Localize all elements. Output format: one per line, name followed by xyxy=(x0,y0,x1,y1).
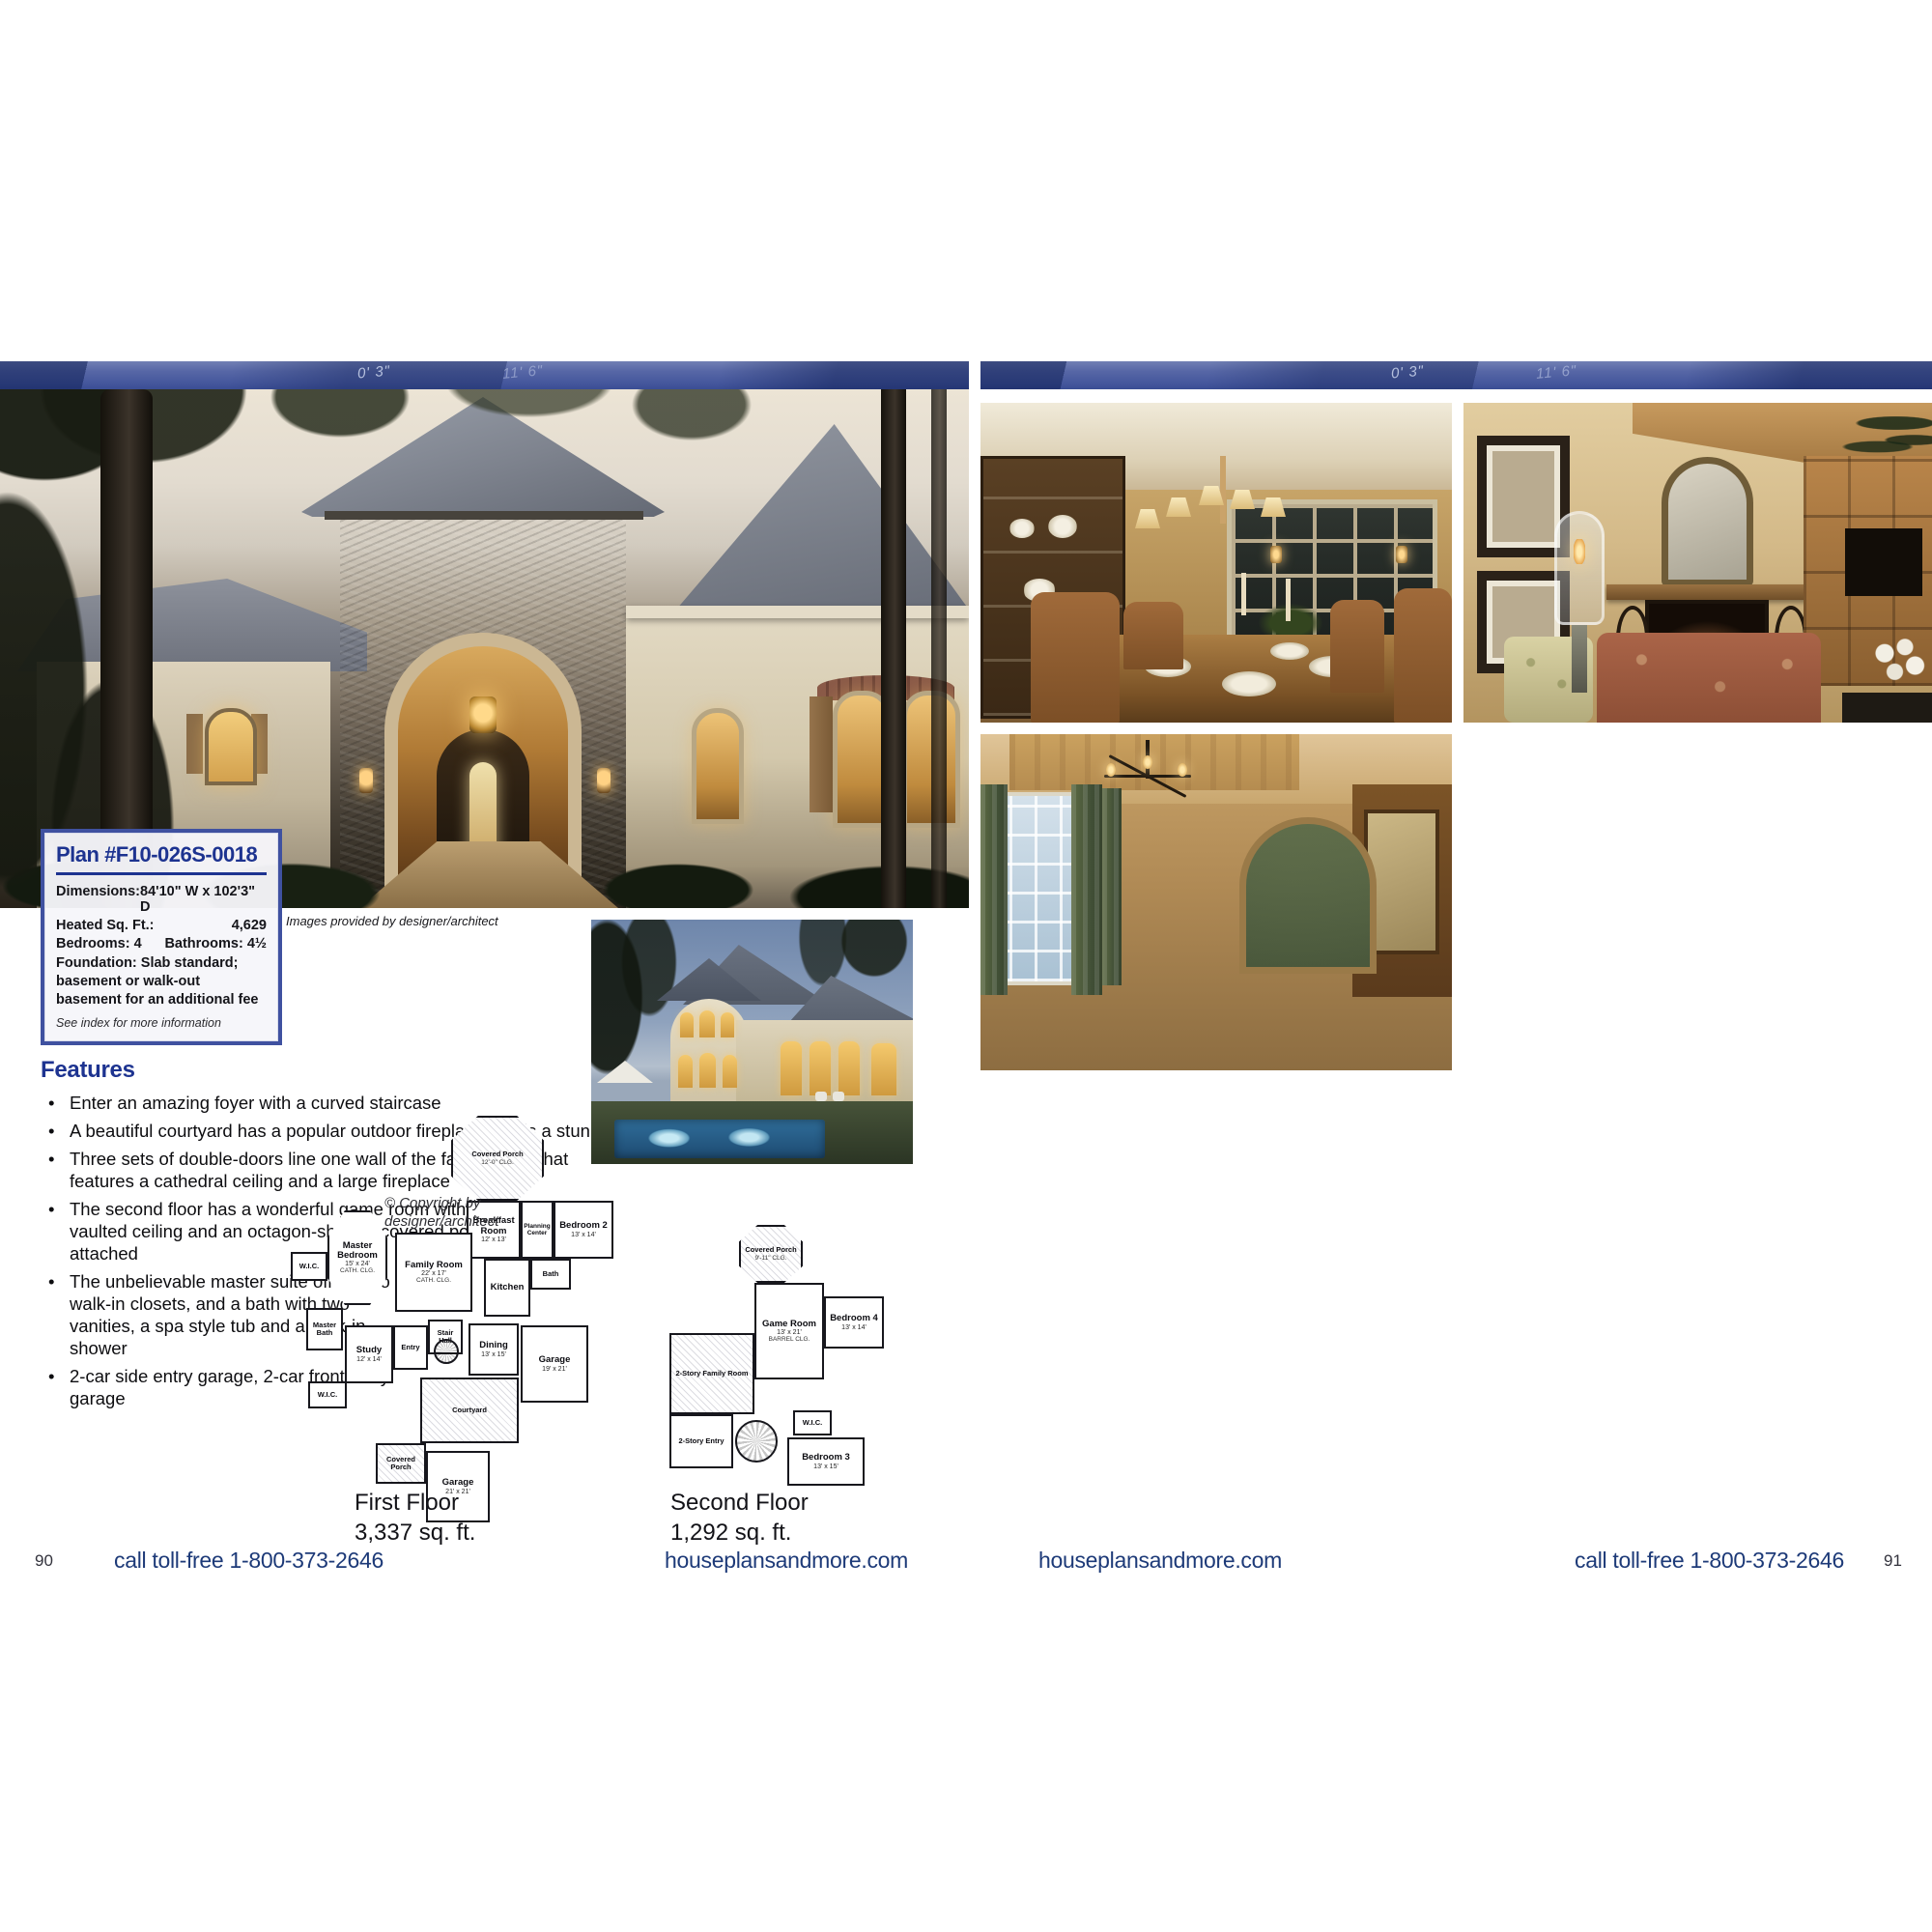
taper-candle xyxy=(1286,579,1291,621)
floral-sofa xyxy=(1597,633,1821,723)
wall-sconce xyxy=(359,768,373,793)
fp1-kitchen: Kitchen xyxy=(484,1259,530,1317)
room-dim: 13' x 14' xyxy=(841,1324,867,1331)
fp1-covered-porch: Covered Porch 12'-0" clg. xyxy=(451,1116,544,1201)
dining-chair xyxy=(1394,588,1452,723)
room-label: Garage xyxy=(539,1355,571,1365)
plan-info-box: Plan #F10-026S-0018 Dimensions: 84'10" W… xyxy=(41,829,282,1045)
room-dim: 13' x 15' xyxy=(813,1463,838,1470)
cabinet-niche xyxy=(1845,528,1922,596)
lit-window xyxy=(723,1055,737,1088)
room-note: cath. clg. xyxy=(340,1267,375,1274)
fp1-covered-porch-front: Covered Porch xyxy=(376,1443,426,1484)
hurricane-candle xyxy=(1554,511,1605,625)
room-dim: 22' x 17' xyxy=(421,1270,446,1277)
fp1-courtyard: Courtyard xyxy=(420,1378,519,1443)
pillow xyxy=(1295,933,1363,972)
china-piece xyxy=(1009,519,1035,538)
fp2-bedroom-4: Bedroom 4 13' x 14' xyxy=(824,1296,884,1349)
fp1-bath: Bath xyxy=(530,1259,571,1290)
lit-window xyxy=(680,1012,694,1037)
lit-window xyxy=(692,708,744,824)
room-label: Courtyard xyxy=(452,1406,487,1414)
fp1-family-room: Family Room 22' x 17' cath. clg. xyxy=(395,1233,472,1312)
lit-window xyxy=(678,1055,693,1088)
toll-free-text-right: call toll-free 1-800-373-2646 xyxy=(1575,1548,1844,1574)
living-room-fireplace-photo xyxy=(1463,403,1932,723)
candlestick-base xyxy=(1572,625,1587,693)
chandelier-light xyxy=(1143,755,1152,769)
sconce-light xyxy=(1396,546,1407,563)
room-label: Covered Porch xyxy=(379,1456,423,1471)
room-label: Study xyxy=(356,1346,382,1355)
place-setting xyxy=(1222,671,1276,696)
heated-sqft-label: Heated Sq. Ft.: xyxy=(56,918,155,933)
lit-window xyxy=(838,1041,860,1095)
fp1-wic2: W.I.C. xyxy=(308,1381,347,1408)
mantel-mirror xyxy=(1662,457,1753,586)
lit-window xyxy=(721,1012,734,1037)
page-number-left: 90 xyxy=(35,1551,53,1571)
room-label: Entry xyxy=(401,1344,419,1351)
bathrooms-value: Bathrooms: 4½ xyxy=(164,936,267,952)
room-label: Bedroom 2 xyxy=(559,1221,608,1231)
room-note: barrel clg. xyxy=(769,1336,810,1343)
room-label: W.I.C. xyxy=(803,1419,822,1427)
room-label: W.I.C. xyxy=(318,1391,337,1399)
copyright-note: © Copyright by designer/architect xyxy=(384,1194,539,1231)
foundation-note: Foundation: Slab standard; basement or w… xyxy=(56,954,267,1009)
room-label: 2-Story Entry xyxy=(678,1437,724,1445)
lit-window xyxy=(871,1043,896,1095)
dining-chair xyxy=(1123,602,1183,669)
fp1-bedroom-2: Bedroom 2 13' x 14' xyxy=(554,1201,613,1259)
fp1-entry: Entry xyxy=(393,1325,428,1370)
place-setting xyxy=(1270,642,1309,660)
banner-texture xyxy=(980,361,1932,389)
fp1-wic: W.I.C. xyxy=(291,1252,327,1281)
spec-row-sqft: Heated Sq. Ft.: 4,629 xyxy=(56,918,267,933)
patio-chair xyxy=(815,1092,827,1101)
see-index-note: See index for more information xyxy=(56,1016,267,1030)
second-floor-plan: Covered Porch 9'-11" clg. Game Room 13' … xyxy=(642,1225,927,1491)
swimming-pool xyxy=(614,1120,825,1158)
curved-staircase-symbol xyxy=(434,1339,459,1364)
side-table xyxy=(1842,693,1932,723)
chandelier-light xyxy=(1178,763,1187,777)
catalog-spread: 0' 3" 11' 6" 0' 3" 11' 6" xyxy=(0,0,1932,1932)
fp1-study: Study 12' x 14' xyxy=(345,1325,393,1383)
fp1-dining: Dining 13' x 15' xyxy=(469,1323,519,1376)
blueprint-banner-right: 0' 3" 11' 6" xyxy=(980,361,1932,389)
room-label: Covered Porch xyxy=(471,1151,523,1158)
wood-mantel xyxy=(1606,584,1807,600)
second-floor-sqft: 1,292 sq. ft. xyxy=(670,1518,809,1548)
first-floor-sqft: 3,337 sq. ft. xyxy=(355,1518,475,1548)
room-note: 9'-11" clg. xyxy=(754,1255,786,1262)
room-label: Family Room xyxy=(405,1261,463,1270)
dining-chair xyxy=(1031,592,1120,723)
plan-number-title: Plan #F10-026S-0018 xyxy=(56,842,267,875)
sconce-light xyxy=(1270,546,1282,563)
green-drape xyxy=(1071,784,1102,995)
dining-chair xyxy=(1330,600,1384,693)
spec-row-dimensions: Dimensions: 84'10" W x 102'3" D xyxy=(56,884,267,915)
fp2-game-room: Game Room 13' x 21' barrel clg. xyxy=(754,1283,824,1379)
chandelier-light xyxy=(1106,763,1116,777)
green-drape xyxy=(980,784,1008,995)
website-text-right: houseplansandmore.com xyxy=(1038,1548,1282,1574)
photo-credit-caption: Images provided by designer/architect xyxy=(286,914,498,928)
room-dim: 15' x 24' xyxy=(345,1261,370,1267)
dining-room-photo xyxy=(980,403,1452,723)
dimensions-value: 84'10" W x 102'3" D xyxy=(140,884,267,915)
room-label: Master Bath xyxy=(309,1321,340,1337)
room-note: cath. clg. xyxy=(416,1277,451,1284)
chandelier-rope xyxy=(1220,456,1226,524)
fp2-covered-porch: Covered Porch 9'-11" clg. xyxy=(739,1225,803,1283)
room-label: Game Room xyxy=(762,1320,816,1329)
room-label: W.I.C. xyxy=(299,1263,319,1270)
room-label: Bedroom 4 xyxy=(830,1314,878,1323)
bedrooms-value: Bedrooms: 4 xyxy=(56,936,142,952)
room-dim: 13' x 14' xyxy=(571,1232,596,1238)
hanging-lantern xyxy=(469,696,497,733)
tree-trunk xyxy=(931,389,947,908)
tree-trunk xyxy=(881,389,906,908)
features-heading: Features xyxy=(41,1057,135,1084)
toll-free-text-left: call toll-free 1-800-373-2646 xyxy=(114,1548,384,1574)
first-floor-plan: Covered Porch 12'-0" clg. Breakfast Room… xyxy=(237,1111,642,1531)
fp1-master-bedroom: Master Bedroom 15' x 24' cath. clg. xyxy=(327,1210,387,1305)
fp2-bedroom-3: Bedroom 3 13' x 15' xyxy=(787,1437,865,1486)
room-label: Master Bedroom xyxy=(330,1241,384,1262)
blueprint-banner-left: 0' 3" 11' 6" xyxy=(0,361,969,389)
china-piece xyxy=(1048,515,1077,538)
second-floor-title: Second Floor xyxy=(670,1488,809,1518)
spec-row-beds-baths: Bedrooms: 4 Bathrooms: 4½ xyxy=(56,936,267,952)
room-dim: 12' x 14' xyxy=(356,1356,382,1363)
white-flowers xyxy=(1864,635,1932,696)
room-label: Covered Porch xyxy=(745,1246,796,1254)
fp1-master-bath: Master Bath xyxy=(306,1308,343,1350)
room-label: Bedroom 3 xyxy=(802,1453,850,1463)
room-label: 2-Story Family Room xyxy=(675,1370,748,1378)
room-label: Kitchen xyxy=(491,1283,525,1293)
room-dim: 13' x 15' xyxy=(481,1351,506,1358)
website-text-left: houseplansandmore.com xyxy=(618,1548,908,1574)
pillow xyxy=(1228,927,1303,970)
lit-window xyxy=(699,1010,715,1037)
tree-canopy xyxy=(232,389,773,505)
first-floor-caption: First Floor 3,337 sq. ft. xyxy=(355,1488,475,1548)
dimensions-label: Dimensions: xyxy=(56,884,140,915)
lit-window xyxy=(810,1041,831,1095)
fp1-garage-side: Garage 19' x 21' xyxy=(521,1325,588,1403)
window-shutter xyxy=(810,696,833,812)
room-label: Bath xyxy=(543,1270,559,1278)
second-floor-caption: Second Floor 1,292 sq. ft. xyxy=(670,1488,809,1548)
fp2-two-story-family-room: 2-Story Family Room xyxy=(669,1333,754,1414)
blueprint-mark: 0' 3" xyxy=(1390,363,1424,383)
green-drape xyxy=(1102,788,1122,985)
lit-window xyxy=(781,1041,802,1095)
room-dim: 13' x 21' xyxy=(777,1329,802,1336)
first-floor-title: First Floor xyxy=(355,1488,475,1518)
spiral-staircase-symbol xyxy=(735,1420,778,1463)
eave-line xyxy=(325,511,643,520)
fp2-two-story-entry: 2-Story Entry xyxy=(669,1414,733,1468)
cornice xyxy=(626,606,969,618)
wall-sconce xyxy=(597,768,611,793)
heated-sqft-value: 4,629 xyxy=(232,918,267,933)
room-note: 12'-0" clg. xyxy=(481,1159,514,1166)
master-bedroom-photo xyxy=(980,734,1452,1070)
room-label: Dining xyxy=(479,1341,508,1350)
banner-texture xyxy=(0,361,969,389)
fp2-wic: W.I.C. xyxy=(793,1410,832,1435)
lit-window xyxy=(699,1053,716,1088)
page-number-right: 91 xyxy=(1884,1551,1902,1571)
blueprint-mark: 0' 3" xyxy=(356,363,390,383)
patio-chair xyxy=(833,1092,844,1101)
room-dim: 19' x 21' xyxy=(542,1366,567,1373)
room-dim: 12' x 13' xyxy=(481,1236,506,1243)
taper-candle xyxy=(1241,573,1246,615)
